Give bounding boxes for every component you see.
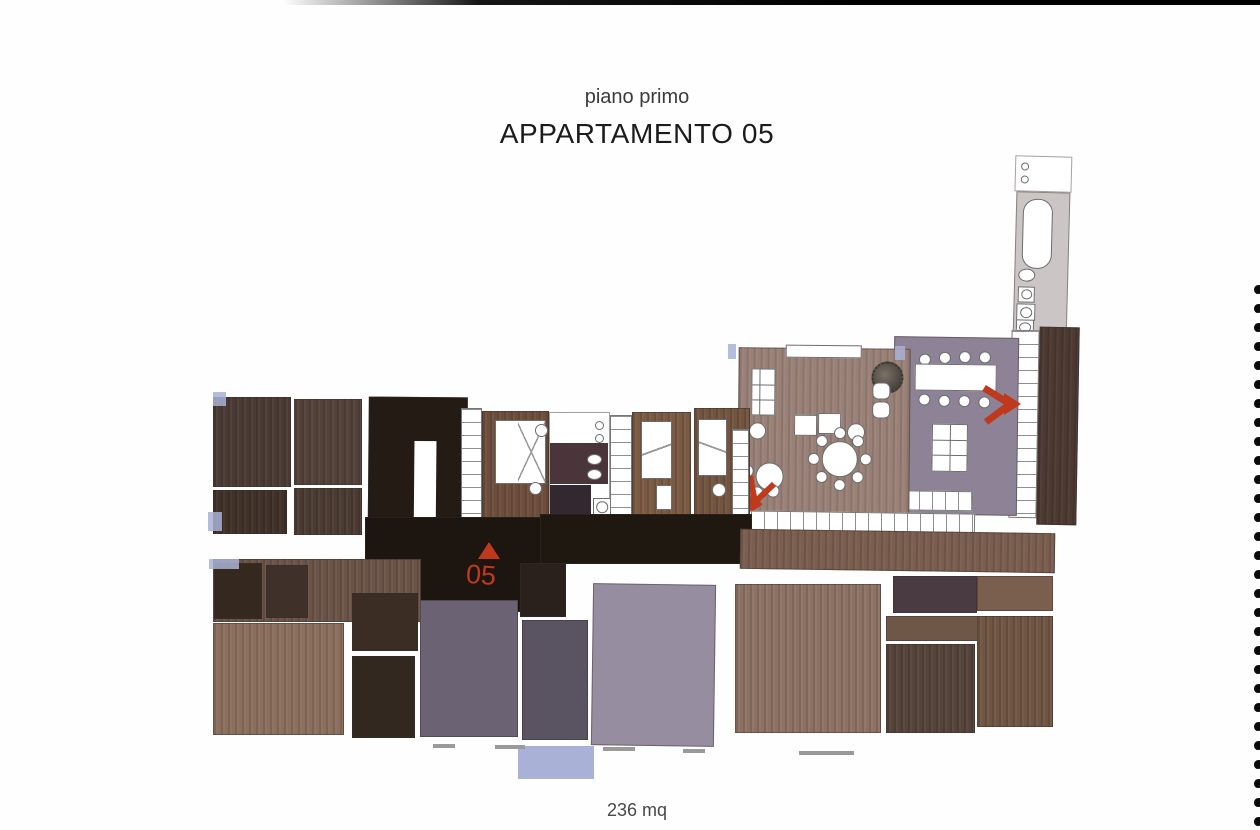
binding-hole-dot xyxy=(1254,741,1260,750)
steps xyxy=(905,490,973,511)
bath-counter xyxy=(1014,155,1072,192)
scanned-floorplan-page: { "page": { "subtitle": "piano primo", "… xyxy=(0,0,1260,830)
chair xyxy=(816,435,828,447)
wall-mark xyxy=(603,747,635,751)
wall-mark xyxy=(495,745,525,749)
unit-marker-triangle-icon xyxy=(478,542,500,559)
faucet-icon xyxy=(1021,162,1029,170)
wardrobe xyxy=(461,408,482,523)
chair xyxy=(852,471,864,483)
binding-hole-dot xyxy=(1254,380,1260,389)
binding-hole-dot xyxy=(1254,475,1260,484)
bidet xyxy=(587,469,602,480)
binding-hole-dot xyxy=(1254,399,1260,408)
binding-hole-dot xyxy=(1254,285,1260,294)
window-tick xyxy=(209,559,239,569)
nightstand xyxy=(535,424,548,437)
room-adjacent xyxy=(294,399,362,485)
armchair xyxy=(872,382,890,399)
sink xyxy=(595,434,604,443)
single-bed xyxy=(641,421,672,479)
room-dark-purple xyxy=(893,576,977,613)
binding-hole-dot xyxy=(1254,608,1260,617)
chair xyxy=(860,453,872,465)
binding-hole-dot xyxy=(1254,361,1260,370)
chair xyxy=(852,435,864,447)
window-tick xyxy=(208,512,222,531)
window-tick xyxy=(213,392,226,406)
room-band-small xyxy=(886,616,981,641)
bathtub xyxy=(1021,198,1053,269)
chair xyxy=(979,351,991,363)
wall-mark xyxy=(799,751,854,755)
binding-hole-dot xyxy=(1254,494,1260,503)
room-right-col-2 xyxy=(977,616,1053,727)
binding-hole-dot xyxy=(1254,456,1260,465)
binding-hole-dot xyxy=(1254,570,1260,579)
room-adjacent xyxy=(352,656,415,738)
room-mauve xyxy=(591,583,716,747)
armchair xyxy=(872,401,890,418)
room-adjacent xyxy=(213,397,291,487)
binding-hole-dot xyxy=(1254,532,1260,541)
room-corridor-right xyxy=(740,529,1056,573)
binding-hole-dot xyxy=(1254,665,1260,674)
binding-hole-dot xyxy=(1254,342,1260,351)
nightstand xyxy=(529,482,542,495)
chair xyxy=(808,453,820,465)
room-gray-purple xyxy=(420,600,518,737)
room-dark-sliver xyxy=(520,563,566,617)
room-step xyxy=(886,644,975,733)
balcony xyxy=(518,746,594,779)
wall-mark xyxy=(433,744,455,748)
binding-hole-dot xyxy=(1254,779,1260,788)
chair xyxy=(959,351,971,363)
room-adjacent xyxy=(213,490,287,534)
room-right-col-1 xyxy=(977,576,1053,611)
entrance-arrow-icon xyxy=(980,383,1022,427)
wall-mark xyxy=(683,749,705,753)
sink xyxy=(595,421,604,430)
room-adjacent xyxy=(266,565,308,618)
chair xyxy=(816,471,828,483)
floor-subtitle: piano primo xyxy=(7,86,1260,109)
bath-floor xyxy=(1013,191,1071,336)
unit-label: 05 xyxy=(465,559,497,592)
sink xyxy=(1018,268,1035,281)
room-adjacent xyxy=(352,593,418,651)
room-bottom-left xyxy=(213,623,344,735)
dining-table-round xyxy=(822,441,858,477)
scan-edge-artifact xyxy=(283,0,1260,5)
chair xyxy=(834,427,846,439)
binding-hole-dot xyxy=(1254,589,1260,598)
binding-hole-dot xyxy=(1254,684,1260,693)
binding-hole-dot xyxy=(1254,418,1260,427)
window-tick xyxy=(728,344,736,359)
floor-plan: 05 xyxy=(205,150,1085,810)
binding-hole-dot xyxy=(1254,703,1260,712)
binding-hole-dot xyxy=(1254,323,1260,332)
corridor-dark-2 xyxy=(540,514,752,564)
binding-hole-dot xyxy=(1254,437,1260,446)
sofa xyxy=(751,368,775,415)
faucet-icon xyxy=(1021,175,1029,183)
glass-table xyxy=(931,424,968,472)
binding-hole-dot xyxy=(1254,551,1260,560)
binding-hole-dot xyxy=(1254,304,1260,313)
room-bathroom-strip xyxy=(1011,155,1076,339)
room-adjacent xyxy=(214,563,262,619)
binding-hole-dot xyxy=(1254,646,1260,655)
window-tick xyxy=(895,346,905,360)
room-adjacent xyxy=(294,488,362,535)
chair xyxy=(918,393,930,405)
binding-hole-dot xyxy=(1254,760,1260,769)
room-dark-strip-right xyxy=(1036,327,1079,526)
side-table-round xyxy=(749,422,766,439)
chair xyxy=(958,395,970,407)
stool xyxy=(712,483,726,497)
coffee-table xyxy=(794,415,817,436)
chair xyxy=(833,479,845,491)
rug xyxy=(656,485,672,510)
toilet xyxy=(587,454,602,465)
chair xyxy=(938,395,950,407)
binding-hole-dot xyxy=(1254,722,1260,731)
chair xyxy=(939,352,951,364)
wall-niche xyxy=(786,345,862,359)
room-narrow-purple xyxy=(522,620,588,740)
binding-hole-dot xyxy=(1254,513,1260,522)
single-bed xyxy=(698,419,727,476)
binding-hole-dot xyxy=(1254,627,1260,636)
room-bottom-right-1 xyxy=(735,584,881,733)
toilet xyxy=(1018,286,1035,302)
page-title: APPARTAMENTO 05 xyxy=(7,118,1260,150)
bidet xyxy=(1016,303,1035,320)
